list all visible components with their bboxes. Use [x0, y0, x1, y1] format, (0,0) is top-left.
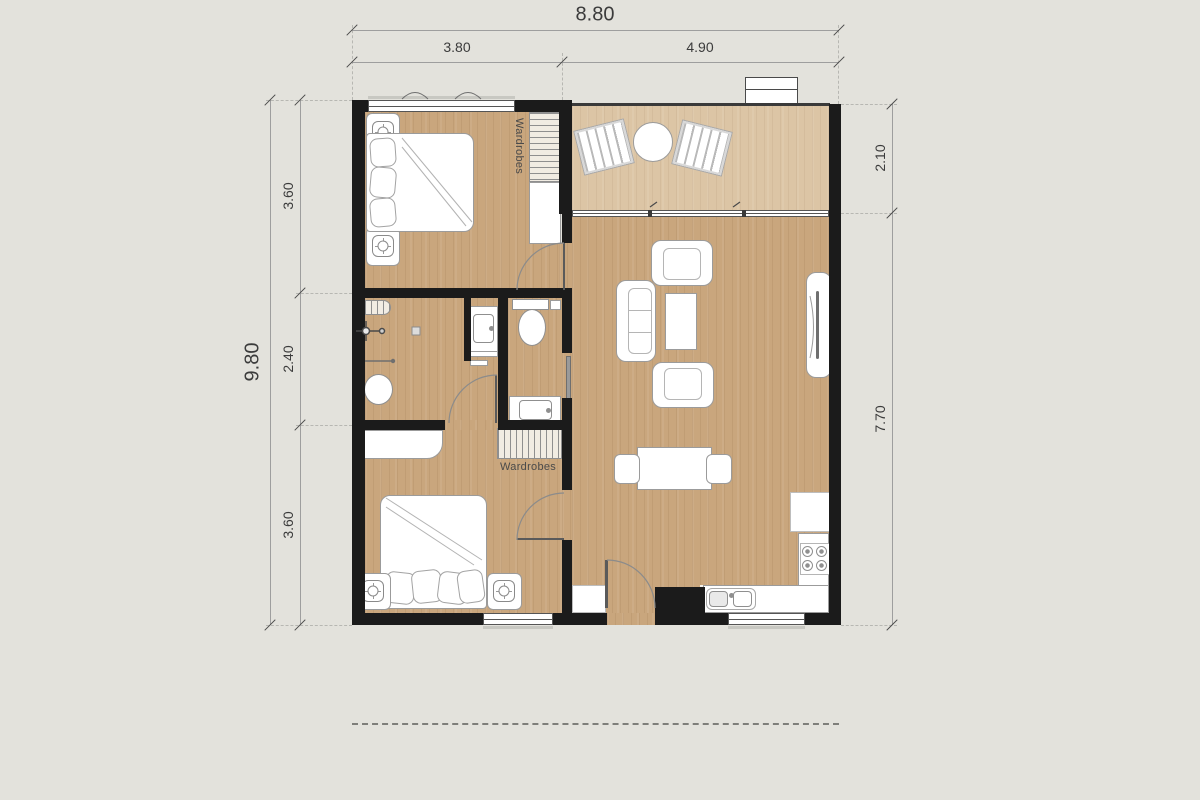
kitchen-faucet-icon [729, 593, 734, 598]
entry-door-leaf [605, 560, 608, 608]
extension-line [266, 625, 352, 626]
bathroom1-faucet-icon [489, 326, 494, 331]
window-sill [728, 626, 805, 629]
armchair-bottom-seat [664, 368, 702, 400]
dimension-line-left-segments [300, 100, 301, 625]
bedroom1-pillow [369, 137, 397, 168]
kitchen-sink-basin-right [733, 591, 752, 607]
bedroom2-pillow [456, 568, 486, 604]
dimension-top-overall: 8.80 [576, 4, 615, 27]
balcony-round-table [633, 122, 673, 162]
ac-unit [745, 77, 798, 104]
dimension-top-segment-1: 3.80 [443, 39, 470, 55]
bedroom2-window [483, 613, 553, 625]
window-sill [368, 96, 515, 99]
bottom-wall [705, 613, 728, 625]
tv-icon [816, 291, 819, 359]
coffee-table [665, 293, 697, 350]
dimension-line-left-overall [270, 100, 271, 625]
hall-wall [562, 398, 572, 430]
kitchen-sink-basin-left [709, 591, 728, 607]
bedroom1-pillow [369, 166, 398, 199]
towel-rail [470, 360, 488, 366]
bedroom1-balcony-wall [559, 100, 572, 214]
hall-wall [562, 298, 572, 353]
extension-line [296, 293, 352, 294]
slider-jamb [742, 210, 746, 217]
bedroom2-doorway-floor [562, 490, 572, 540]
bathroom2-sliding-door-leaf [566, 356, 571, 400]
dimension-top-segment-2: 4.90 [686, 39, 713, 55]
balcony-rail [572, 103, 830, 106]
bathroom1-door-leaf [495, 375, 497, 423]
entry-doorway-floor [607, 613, 655, 625]
bedroom2-wardrobe-label: Wardrobes [500, 461, 556, 473]
slider-jamb [648, 210, 652, 217]
bedroom1-wardrobe-label: Wardrobes [513, 118, 525, 174]
stove-burner-icon [802, 560, 813, 571]
entry-porch [572, 585, 606, 613]
dining-chair-right [706, 454, 732, 484]
bedroom2-lamp-left-icon [362, 580, 384, 602]
right-wall [829, 104, 841, 625]
refrigerator [790, 492, 830, 532]
armchair-top-seat [663, 248, 701, 280]
vanity-nook-wall [464, 293, 471, 361]
toilet2-bowl [518, 309, 546, 346]
dimension-left-segment-3: 3.60 [280, 511, 296, 538]
bedroom2-desk [360, 430, 443, 459]
dining-chair-left [614, 454, 640, 484]
dimension-line-right [892, 104, 893, 625]
bedroom1-doorway-floor [559, 243, 572, 288]
floor-plan-canvas: Wardrobes Wardrobes [0, 0, 1200, 800]
stove-burner-icon [816, 560, 827, 571]
bedroom1-pillow [369, 197, 397, 228]
bedroom1-window [368, 100, 515, 112]
dimension-right-segment-1: 2.10 [872, 144, 888, 171]
entry-pier-wall [655, 587, 705, 625]
left-wall [352, 100, 365, 625]
bathroom1-doorway-floor [445, 420, 498, 430]
stove-burner-icon [802, 546, 813, 557]
hall-wall [562, 540, 572, 613]
bedroom1-wardrobe-counter [529, 182, 561, 244]
sofa-seat [628, 288, 652, 354]
bathrooms-divider-wall [498, 293, 508, 430]
dimension-left-segment-2: 2.40 [280, 345, 296, 372]
hall-wall [562, 430, 572, 490]
bedroom1-door-leaf [563, 243, 565, 290]
bathroom2-faucet-icon [546, 408, 551, 413]
balcony-sliding-door [572, 210, 829, 217]
kitchen-window [728, 613, 805, 625]
hall-wall [562, 214, 572, 243]
bedroom1-wardrobe [529, 112, 561, 182]
bedroom2-wardrobe [497, 428, 562, 459]
stove-burner-icon [816, 546, 827, 557]
extension-line [296, 425, 352, 426]
bottom-wall [805, 613, 841, 625]
setback-dashed-line [352, 723, 839, 725]
bathroom2-shelf [550, 300, 561, 310]
bathroom1-bottom-wall [352, 420, 445, 430]
toilet1-bowl [364, 374, 393, 405]
towel-rail [470, 351, 498, 357]
bottom-wall [352, 613, 483, 625]
dimension-left-segment-1: 3.60 [280, 182, 296, 209]
extension-line [838, 25, 839, 104]
bedrooms-divider-wall [352, 288, 572, 298]
bedroom1-lamp-bottom-icon [372, 235, 394, 257]
bedroom2-door-leaf [517, 538, 564, 540]
dimension-line-top-segments [352, 62, 839, 63]
dining-table [637, 447, 712, 490]
extension-line [266, 100, 352, 101]
bedroom2-lamp-right-icon [493, 580, 515, 602]
dimension-left-overall: 9.80 [242, 343, 265, 382]
bottom-wall [553, 613, 607, 625]
dimension-right-segment-2: 7.70 [872, 405, 888, 432]
bathroom2-bottom-wall [498, 420, 572, 430]
window-sill [483, 626, 553, 629]
dimension-line-top-overall [352, 30, 839, 31]
